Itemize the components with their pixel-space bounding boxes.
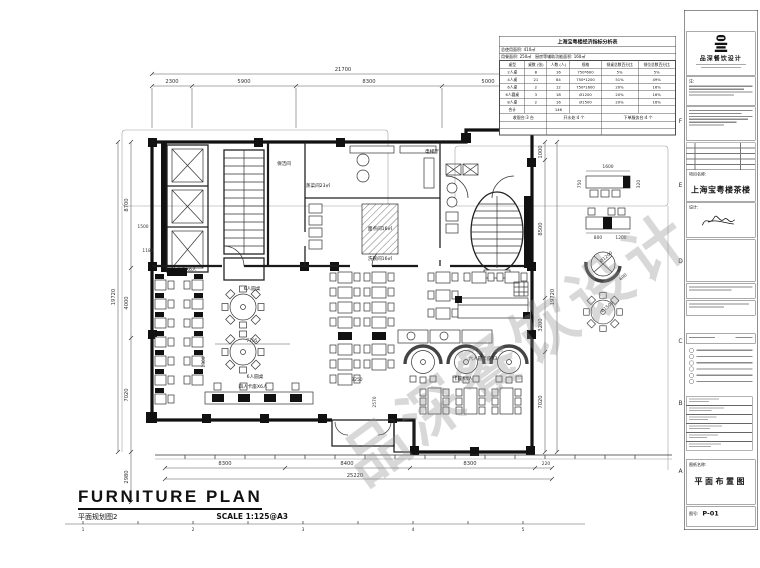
svg-text:7195: 7195 <box>246 338 257 344</box>
svg-text:四人卡座X6人: 四人卡座X6人 <box>238 383 267 390</box>
svg-text:六人圆卡座X3: 六人圆卡座X3 <box>468 355 497 362</box>
svg-text:19720: 19720 <box>111 289 117 306</box>
svg-text:8700: 8700 <box>124 198 130 211</box>
main-staircase <box>224 150 264 280</box>
empty-section <box>686 240 756 282</box>
svg-text:5900: 5900 <box>237 79 250 85</box>
dimensions: 21700 2300 5900 8300 5000 19720 8700 400… <box>111 67 559 504</box>
drawing-title-section: 图纸名称: 平面布置图 <box>686 460 756 505</box>
svg-text:4: 4 <box>412 527 415 533</box>
round-tables <box>222 286 264 373</box>
table-row: 8人桌216Ø150020%16% <box>500 98 676 106</box>
svg-text:1600: 1600 <box>602 164 613 170</box>
svg-text:6人圆桌: 6人圆桌 <box>244 285 261 292</box>
drawing-number-section: 图号: P-01 <box>686 507 756 527</box>
svg-text:3200: 3200 <box>538 318 544 331</box>
sheet-title-sub: 平面规划图2 <box>78 512 117 522</box>
edge-mark: D <box>677 258 684 265</box>
table-row: 6人桌212750*160020%16% <box>500 83 676 91</box>
svg-text:2: 2 <box>192 527 195 533</box>
svg-text:1: 1 <box>82 527 85 533</box>
svg-text:8500: 8500 <box>538 222 544 235</box>
west-booths <box>155 274 203 404</box>
svg-text:2570: 2570 <box>372 396 378 407</box>
edge-mark: C <box>677 338 684 345</box>
svg-text:电梯厅: 电梯厅 <box>425 148 439 155</box>
svg-text:320: 320 <box>636 180 642 189</box>
note-label: 注: <box>689 79 755 85</box>
svg-text:1000: 1000 <box>538 145 544 158</box>
company-logo <box>712 35 729 52</box>
svg-text:蒸菜间23㎡: 蒸菜间23㎡ <box>306 182 331 189</box>
info-row <box>686 334 756 344</box>
drawing-sheet: 21700 2300 5900 8300 5000 19720 8700 400… <box>0 0 760 568</box>
project-section: 项目名称: 上海宝粤楼茶楼 <box>686 170 756 202</box>
info-box-1 <box>686 284 756 299</box>
econ-footer-row: 收银台:3 台 开水处:4 个 下单服务台:4 个 <box>500 113 676 122</box>
spec-rows <box>686 397 756 457</box>
svg-text:1300: 1300 <box>201 356 207 367</box>
centre-tables <box>330 272 394 385</box>
east-dining <box>428 272 530 319</box>
table-row: 2人桌816750*6005%5% <box>500 68 676 76</box>
svg-text:8300: 8300 <box>463 461 476 467</box>
edge-mark: F <box>677 118 684 125</box>
svg-text:7020: 7020 <box>124 388 130 401</box>
svg-text:19720: 19720 <box>550 289 556 306</box>
sheet-scale: SCALE 1:125@A3 <box>216 512 288 522</box>
info-box-2 <box>686 301 756 316</box>
notes-section-1: 注: <box>686 77 756 106</box>
svg-text:2980: 2980 <box>124 470 130 483</box>
svg-text:5000: 5000 <box>481 79 494 85</box>
title-block: 品深餐饮设计 注: 项目名称: 上海宝粤楼茶楼 <box>684 10 758 530</box>
svg-text:1200: 1200 <box>615 235 626 241</box>
table-row: 4人桌2184750*120051%49% <box>500 76 676 84</box>
signature-section: 设计: <box>686 203 756 238</box>
sheet-title-main: FURNITURE PLAN <box>78 487 262 510</box>
svg-text:8400: 8400 <box>340 461 353 467</box>
oval-staircase <box>446 176 532 278</box>
edge-mark: E <box>677 182 684 189</box>
svg-text:800: 800 <box>594 235 603 241</box>
svg-text:5: 5 <box>522 527 525 533</box>
notes-section-2 <box>686 107 756 141</box>
svg-text:220: 220 <box>542 461 551 467</box>
svg-text:1500: 1500 <box>137 224 148 230</box>
econ-dining-area: 用餐面积: 250㎡ <box>501 55 531 60</box>
svg-text:7020: 7020 <box>538 395 544 408</box>
project-label: 项目名称: <box>689 172 755 178</box>
econ-kitchen-area: 厨房等辅助功能面积: 160㎡ <box>535 55 585 60</box>
designer-signature <box>698 212 743 230</box>
sheet-title: FURNITURE PLAN 平面规划图2 SCALE 1:125@A3 <box>78 487 338 522</box>
svg-text:6人圆桌: 6人圆桌 <box>247 373 264 380</box>
svg-text:8300: 8300 <box>362 79 375 85</box>
econ-header-row: 桌型桌数 (张) 人数 (人)规格 餐桌总数百分比餐位总数百分比 <box>500 61 676 69</box>
svg-text:四人卡座X6人: 四人卡座X6人 <box>167 266 196 273</box>
economic-table: 上海宝粤楼经济指标分析表 总使用面积: 410㎡ 用餐面积: 250㎡ 厨房等辅… <box>499 36 675 130</box>
svg-text:750: 750 <box>577 180 583 189</box>
table-row: 6人圆桌318Ø120020%16% <box>500 91 676 99</box>
drawing-number-label: 图号: <box>689 511 698 517</box>
scale-ruler: 1 2 3 4 5 <box>65 521 585 533</box>
drawing-title-label: 图纸名称: <box>689 462 755 468</box>
svg-text:3250: 3250 <box>351 377 362 383</box>
edge-mark: B <box>677 400 684 407</box>
drawing-number: P-01 <box>702 510 718 518</box>
legend-rows <box>686 347 756 395</box>
elevator-bank <box>161 142 208 276</box>
econ-table-title: 上海宝粤楼经济指标分析表 <box>500 37 676 47</box>
design-label: 设计: <box>689 205 755 211</box>
svg-text:3: 3 <box>302 527 305 533</box>
svg-text:卡座X4人: 卡座X4人 <box>453 375 473 382</box>
drawing-title: 平面布置图 <box>687 475 756 487</box>
svg-text:25220: 25220 <box>347 473 364 479</box>
company-name: 品深餐饮设计 <box>687 54 756 63</box>
revision-table <box>686 143 756 168</box>
svg-text:21700: 21700 <box>335 67 352 73</box>
company-section: 品深餐饮设计 <box>686 32 756 76</box>
round-booth-area <box>398 330 527 383</box>
econ-total-area: 总使用面积: 410㎡ <box>500 47 676 54</box>
svg-text:保洁间: 保洁间 <box>277 160 291 167</box>
edge-mark: A <box>677 468 684 475</box>
furniture-details: 1600 320 750 800 1200 Ø1200 600 Ø1500 <box>577 164 642 331</box>
bottom-tables <box>420 388 521 414</box>
table-row: 合计146 <box>500 106 676 114</box>
entry-vestibule <box>332 420 394 446</box>
svg-text:600: 600 <box>618 272 628 282</box>
svg-text:1180: 1180 <box>142 248 153 254</box>
svg-text:洗碗间16㎡: 洗碗间16㎡ <box>368 255 393 262</box>
project-name: 上海宝粤楼茶楼 <box>687 183 756 195</box>
svg-text:4000: 4000 <box>124 296 130 309</box>
svg-text:2300: 2300 <box>165 79 178 85</box>
svg-text:8300: 8300 <box>218 461 231 467</box>
terrace <box>155 455 672 459</box>
svg-text:面点间16㎡: 面点间16㎡ <box>368 225 393 232</box>
kitchen-zone <box>152 142 532 266</box>
